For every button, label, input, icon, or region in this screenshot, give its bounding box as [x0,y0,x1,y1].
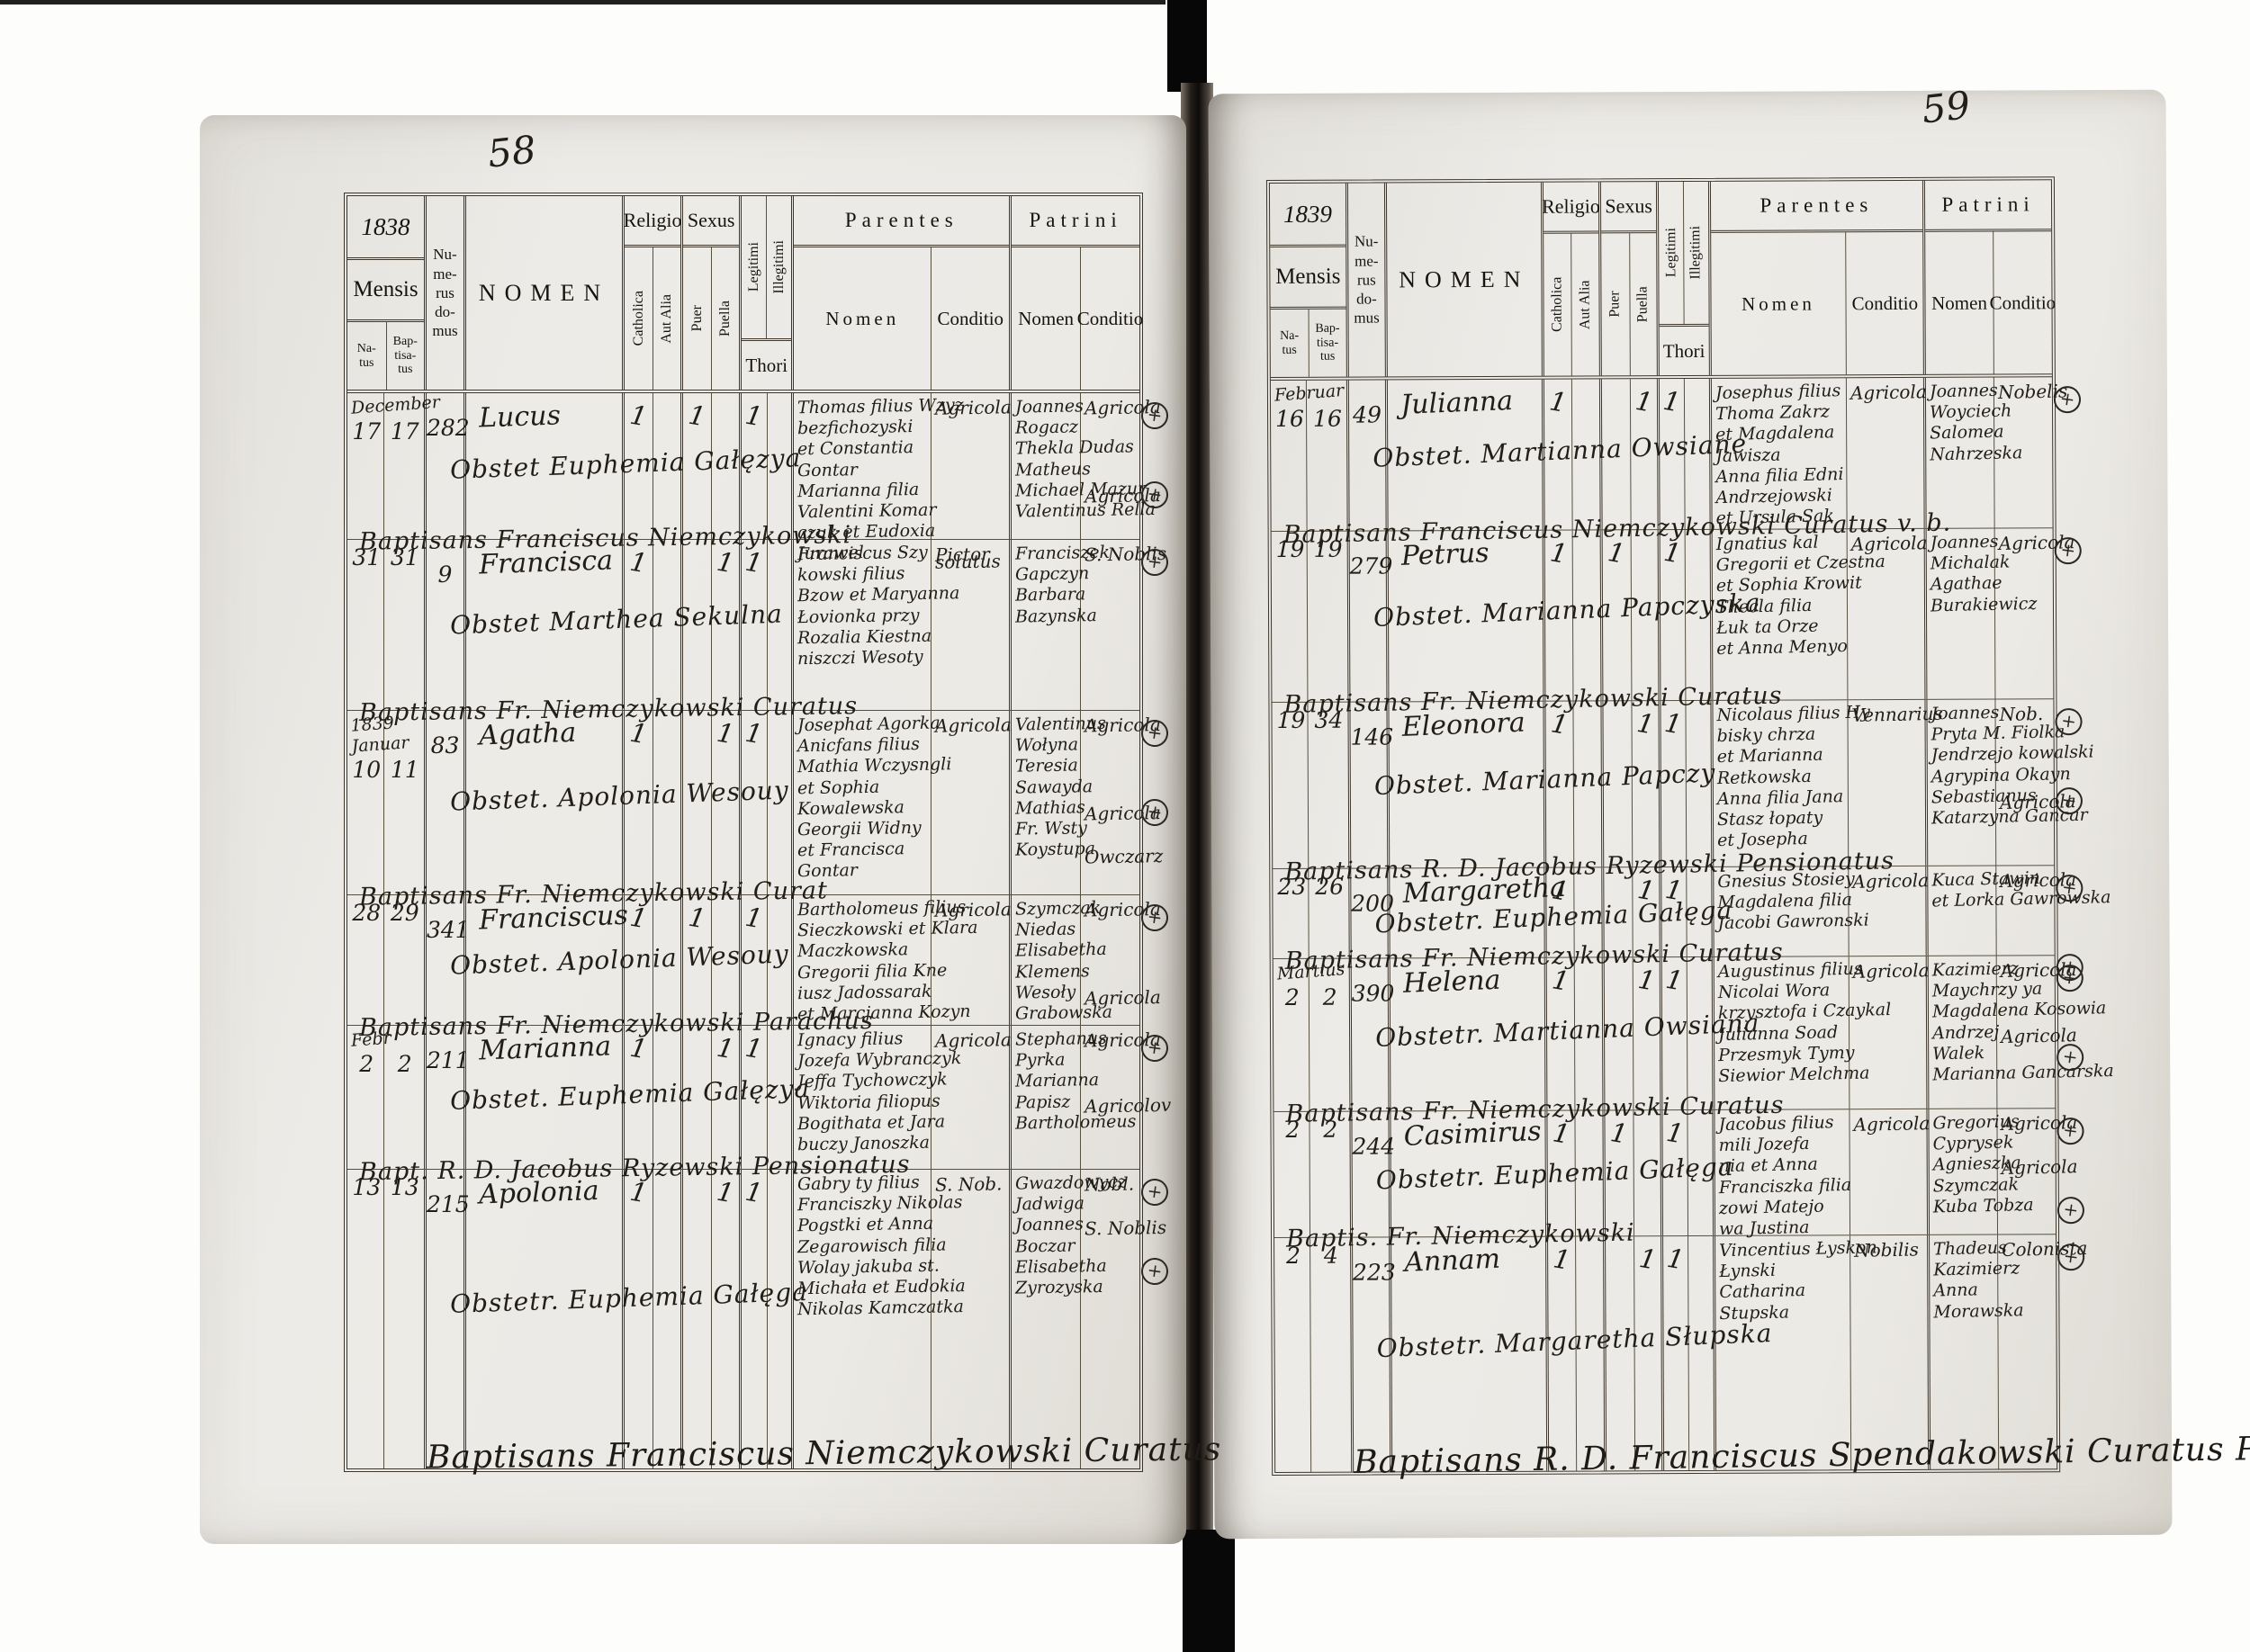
header-mensis-label: Mensis [1270,247,1345,310]
entry-legitimi-cell: 1 [742,1170,794,1468]
register-entries: Februar 16 16 49 Julianna 1 1 1 [1271,377,2056,1472]
register-entry: 19 34 146 Eleonora 1 1 1 [1272,699,2054,869]
entry-natus-day: 10 [347,757,386,783]
header-natus: Na-tus [1271,310,1309,377]
entry-mensis-cell: 19 19 [1272,532,1351,702]
register-entry: 13 13 215 Apolonia 1 1 1 [347,1170,1139,1468]
entry-parentes-nomen: Gabry ty filiusFranciszky NikolasPogstki… [794,1170,931,1468]
entry-patrini-nomen: FranciszekGapczynBarbaraBazynska [1012,540,1080,710]
entry-parentes-conditio: Agricola [1849,1109,1927,1235]
header-parentes-label: Parentes [794,196,1009,247]
entry-mensis-cell: 13 13 [347,1170,427,1468]
register-entry: December 17 17 282 Lucus 1 1 1 [347,393,1139,540]
header-puella: Puella [1629,233,1657,375]
header-parentes-group: Parentes Nomen Conditio [794,196,1012,390]
header-year: 1838 [347,196,424,260]
entry-parentes-conditio: Agricola [931,1026,1009,1169]
header-catholica: Catholica [625,247,652,390]
page-number: 59 [1920,83,1972,132]
table-header: 1839 Mensis Na-tus Bap-tisa-tus Nu- [1270,180,2052,381]
header-patrini-conditio: Conditio [1080,247,1139,390]
header-nomen: NOMEN [466,196,625,390]
register-entry: Febr 2 2 211 Marianna 1 1 1 [347,1026,1139,1170]
entry-parentes-conditio: Vennarius [1848,700,1926,866]
entry-legitimi-cell: 1 [1663,1236,1715,1470]
register-entry: Martius 2 2 390 Helena 1 1 1 [1273,956,2056,1112]
header-religio-group: Religio Catholica Aut Alia [625,196,683,390]
header-patrini-nomen: Nomen [1012,247,1080,390]
header-legitimi: Legitimi [1659,182,1683,324]
header-baptisatus: Bap-tisa-tus [1308,310,1345,377]
entry-parentes-nomen: Ignacy filiusJozefa WybranczykJeffa Tych… [794,1026,931,1169]
entry-natus-day: 2 [347,1051,386,1077]
entry-margin-marks: ++ [1141,402,1168,508]
entry-religio-cell: 1 [625,1170,683,1468]
entry-parentes-nomen: Thomas filius Wzyzbezfichozyskiet Consta… [794,393,931,539]
entry-sexus-cell: 1 [683,1170,742,1468]
header-nomen: NOMEN [1387,183,1544,377]
entry-parentes-cell: Ignacy filiusJozefa WybranczykJeffa Tych… [794,1026,1012,1169]
header-numerus-domus: Nu- me- rus do- mus [1348,183,1388,376]
entry-parentes-conditio: Agricola [1846,378,1924,528]
entry-patrini-conditio: Nobl.S. Noblis [1080,1170,1139,1468]
entry-mensis-cell: 2 2 [1273,1112,1352,1237]
entry-parentes-nomen: Jacobus filiusmili Jozefania et AnnaFran… [1714,1109,1849,1235]
entry-baptisatus-day: 2 [386,1051,425,1077]
entry-parentes-nomen: Josephat AgorkaAnicfans filiusMathia Wcz… [794,711,931,894]
page-number: 58 [486,127,538,175]
baptism-register-table: 1838 Mensis Na-tus Bap-tisa-tus Nu- [344,193,1143,1472]
entry-mensis-cell: Martius 2 2 [1273,959,1353,1111]
header-mensis-group: 1839 Mensis Na-tus Bap-tisa-tus [1270,184,1349,377]
header-religio-group: Religio Catholica Aut Alia [1543,182,1602,375]
table-header: 1838 Mensis Na-tus Bap-tisa-tus Nu- [347,196,1139,393]
entry-baptisatus-day: 16 [1309,406,1346,432]
entry-puer-tick-cell [683,1170,711,1468]
entry-margin-marks: ++ [2056,1118,2084,1224]
entry-parentes-cell: Bartholomeus filiusSieczkowski et KlaraM… [794,895,1012,1025]
entry-patrini-cell: KazimierzMaychrzy yaMagdalena KosowiaAnd… [1929,956,2055,1109]
entry-parentes-cell: Josephat AgorkaAnicfans filiusMathia Wcz… [794,711,1012,894]
header-parentes-nomen: Nomen [1711,232,1847,375]
header-parentes-conditio: Conditio [1846,232,1923,374]
entry-margin-marks: + [1141,904,1168,931]
register-page: 59 1839 Mensis Na-tus Bap-tisa-tus [1209,90,2173,1540]
entry-margin-marks: + [2055,537,2082,564]
header-parentes-label: Parentes [1710,181,1922,233]
entry-parentes-conditio: S. Nob. [931,1170,1009,1468]
entry-parentes-nomen: Nicolaus filius Hybisky chrzaet Marianna… [1713,700,1849,866]
entry-parentes-conditio: Agricolasolutus [931,393,1009,539]
entry-parentes-nomen: Bartholomeus filiusSieczkowski et KlaraM… [794,895,931,1025]
header-sexus-group: Sexus Puer Puella [1601,182,1660,375]
entry-patrini-cell: ValentinusWołynaTeresiaSawaydaMathiasFr.… [1012,711,1139,894]
entry-patrini-nomen: ValentinusWołynaTeresiaSawaydaMathiasFr.… [1012,711,1080,894]
header-sexus-label: Sexus [683,196,739,247]
header-thori: Thori [742,341,791,390]
entry-patrini-cell: JoannesPryta M. FiolkaJendrzejo kowalski… [1928,699,2055,866]
register-entry: 1839Januar 10 11 83 Agatha 1 1 [347,711,1139,895]
register-entry: 31 31 9 Francisca 1 1 1 [347,540,1139,711]
entry-mensis-cell: 19 34 [1272,703,1351,868]
entry-child-name: Julianna [1387,377,1542,422]
entry-month: Februar [1270,378,1346,406]
header-religio-label: Religio [625,196,680,247]
entry-patrini-nomen: JoannesWoyciechSalomeaNahrzeska [1926,378,1993,528]
entry-patrini-conditio: AgricolaAgricola [1080,393,1139,539]
entry-patrini-cell: Kuca Stawinet Lorka Gawrowska Agricola [1928,866,2054,956]
entry-margin-marks: ++ [2056,965,2084,1071]
entry-patrini-nomen: StephanusPyrkaMariannaPapiszBartholomeus [1012,1026,1080,1169]
header-parentes-group: Parentes Nomen Conditio [1710,181,1926,375]
entry-margin-marks: + [1141,549,1168,576]
entry-baptisatus-day: 11 [386,757,425,783]
header-puer: Puer [1601,233,1629,375]
entry-patrini-conditio: Nob.Agricola [1994,699,2054,865]
header-patrini-group: Patrini Nomen Conditio [1012,196,1139,390]
register-entry: 28 29 341 Franciscus 1 1 1 [347,895,1139,1026]
entry-patrini-conditio: Agricola [1995,866,2055,955]
entry-patrini-nomen: JoannesRogaczThekla DudasMatheusMichael … [1012,393,1080,539]
entry-mensis-cell: Februar 16 16 [1271,381,1350,531]
header-legitimi: Legitimi [742,196,766,338]
register-entry: 19 19 279 Petrus 1 1 1 [1272,528,2054,703]
entry-illegitimi-tick-cell [1687,1236,1713,1470]
header-natus: Na-tus [347,322,386,390]
entry-parentes-nomen: Franciscus Szykowski filiusBzow et Marya… [794,540,931,710]
header-parentes-conditio: Conditio [931,247,1009,390]
entry-patrini-cell: FranciszekGapczynBarbaraBazynska S. Nobl… [1012,540,1139,710]
binding-ribbon-top [1167,0,1207,92]
header-numerus-domus: Nu- me- rus do- mus [427,196,466,390]
header-puer: Puer [683,247,711,390]
header-sexus-label: Sexus [1601,182,1656,233]
entry-patrini-nomen: Kuca Stawinet Lorka Gawrowska [1928,866,1995,956]
entry-puella-tick-cell: 1 [711,1170,739,1468]
entry-natus-day: 16 [1271,406,1309,432]
entry-child-name: Lucus [465,391,622,435]
entry-mensis-cell: 1839Januar 10 11 [347,711,427,894]
entry-patrini-nomen: JoannesPryta M. FiolkaJendrzejo kowalski… [1928,700,1995,866]
entry-patrini-cell: JoannesMichalakAgathaeBurakiewicz Agrico… [1927,528,2054,699]
header-aut-alia: Aut Alia [1571,233,1599,375]
entry-patrini-nomen: GregoriusCyprysekAgnieszkaSzymczakKuba T… [1930,1109,1997,1235]
entry-patrini-conditio: AgricolaAgricolov [1080,1026,1139,1169]
entry-margin-marks: + [1141,1035,1168,1062]
entry-month: December [346,391,424,419]
register-entry: Februar 16 16 49 Julianna 1 1 1 [1271,377,2053,532]
header-patrini-group: Patrini Nomen Conditio [1925,180,2052,374]
entry-domus-cell: 215 [427,1170,466,1468]
entry-parentes-cell: Jacobus filiusmili Jozefania et AnnaFran… [1714,1109,1930,1235]
header-mensis-group: 1838 Mensis Na-tus Bap-tisa-tus [347,196,427,390]
entry-margin-marks: + [2054,386,2081,413]
header-patrini-label: Patrini [1925,180,2051,232]
entry-patrini-nomen: JoannesMichalakAgathaeBurakiewicz [1927,529,1994,699]
entry-aut-alia-tick-cell [652,1170,680,1468]
register-entry: 2 2 244 Casimirus 1 1 1 [1273,1109,2056,1238]
entry-mensis-cell: Febr 2 2 [347,1026,427,1169]
header-year: 1839 [1270,184,1345,247]
header-legitimi-group: Legitimi Illegitimi Thori [742,196,794,390]
entry-catholica-tick-cell: 1 [625,1170,652,1468]
entry-patrini-nomen: SzymczakNiedasElisabethaKlemensWesołyGra… [1012,895,1080,1025]
entry-patrini-conditio: AgricolaAgricolaOwczarz [1080,711,1139,894]
scanned-book-spread: { "headers": { "mensis": "Mensis", "natu… [0,0,2250,1652]
baptism-register-table: 1839 Mensis Na-tus Bap-tisa-tus Nu- [1266,176,2060,1476]
header-baptisatus: Bap-tisa-tus [386,322,425,390]
entry-parentes-cell: Nicolaus filius Hybisky chrzaet Marianna… [1713,700,1928,866]
entry-parentes-cell: Gabry ty filiusFranciszky NikolasPogstki… [794,1170,1012,1468]
entry-mensis-cell: 31 31 [347,540,427,710]
header-patrini-label: Patrini [1012,196,1139,247]
entry-natus-day: 17 [347,418,386,444]
entry-mensis-cell: December 17 17 [347,393,427,539]
entry-parentes-cell: Franciscus Szykowski filiusBzow et Marya… [794,540,1012,710]
entry-patrini-cell: JoannesWoyciechSalomeaNahrzeska Nobelis [1926,377,2052,528]
entry-baptisatus-day: 17 [386,418,425,444]
entry-baptisatus-day: 2 [1311,984,1349,1010]
entry-parentes-conditio: Pictor [931,540,1009,710]
header-patrini-nomen: Nomen [1925,232,1993,374]
entry-patrini-nomen: GwazdowyczJadwigaJoannesBoczarElisabetha… [1012,1170,1080,1468]
entry-patrini-conditio: AgricolaAgricola [1995,956,2055,1108]
register-entries: December 17 17 282 Lucus 1 1 1 [347,393,1139,1468]
entry-patrini-cell: GregoriusCyprysekAgnieszkaSzymczakKuba T… [1930,1109,2056,1235]
footer-baptisans-line: Baptisans Franciscus Niemczykowski Curat… [427,1431,1222,1476]
entry-margin-marks: ++ [2055,708,2083,814]
header-thori: Thori [1660,327,1709,375]
entry-legitimi-tick-cell: 1 [1663,1236,1688,1470]
entry-parentes-cell: Thomas filius Wzyzbezfichozyskiet Consta… [794,393,1012,539]
header-sexus-group: Sexus Puer Puella [683,196,742,390]
entry-parentes-conditio: Agricola [1847,529,1925,699]
entry-parentes-cell: Vincentius ŁyskonŁynskiCatharinaStupska … [1715,1235,1931,1470]
entry-patrini-cell: GwazdowyczJadwigaJoannesBoczarElisabetha… [1012,1170,1139,1468]
header-religio-label: Religio [1543,182,1598,233]
header-illegitimi: Illegitimi [766,196,791,338]
entry-illegitimi-tick-cell [767,1170,792,1468]
entry-patrini-cell: JoannesRogaczThekla DudasMatheusMichael … [1012,393,1139,539]
entry-margin-marks: ++ [1141,720,1168,826]
entry-parentes-conditio: Nobilis [1849,1235,1928,1469]
entry-patrini-cell: StephanusPyrkaMariannaPapiszBartholomeus… [1012,1026,1139,1169]
entry-legitimi-tick-cell: 1 [742,1170,767,1468]
entry-margin-marks: ++ [1141,1179,1168,1285]
entry-parentes-conditio: Agricola [931,711,1009,894]
header-aut-alia: Aut Alia [652,247,680,390]
entry-mensis-cell: 2 4 [1274,1238,1354,1472]
entry-parentes-conditio: Agricola [1849,956,1927,1109]
entry-patrini-conditio: AgricolaAgricola [1080,895,1139,1025]
entry-parentes-nomen: Vincentius ŁyskonŁynskiCatharinaStupska [1715,1235,1851,1470]
header-parentes-nomen: Nomen [794,247,931,390]
header-illegitimi: Illegitimi [1683,182,1708,324]
entry-margin-marks: + [2057,1243,2084,1270]
entry-patrini-nomen: KazimierzMaychrzy yaMagdalena KosowiaAnd… [1929,956,1996,1109]
entry-puella-tick-cell: 1 [1633,1236,1662,1470]
header-patrini-conditio: Conditio [1993,231,2052,373]
header-catholica: Catholica [1543,234,1571,376]
header-mensis-label: Mensis [347,260,424,322]
binding-ribbon-bottom [1183,1530,1235,1652]
header-legitimi-group: Legitimi Illegitimi Thori [1659,182,1711,375]
entry-nomen-cell: Apolonia [466,1170,625,1468]
entry-house-number: 49 [1349,380,1386,427]
entry-mensis-cell: 28 29 [347,895,427,1025]
entry-natus-day: 2 [1273,984,1311,1010]
scan-top-edge [0,0,1165,4]
register-page: 58 1838 Mensis Na-tus Bap-tisa-tus [200,115,1186,1544]
header-puella: Puella [711,247,739,390]
entry-patrini-cell: SzymczakNiedasElisabethaKlemensWesołyGra… [1012,895,1139,1025]
